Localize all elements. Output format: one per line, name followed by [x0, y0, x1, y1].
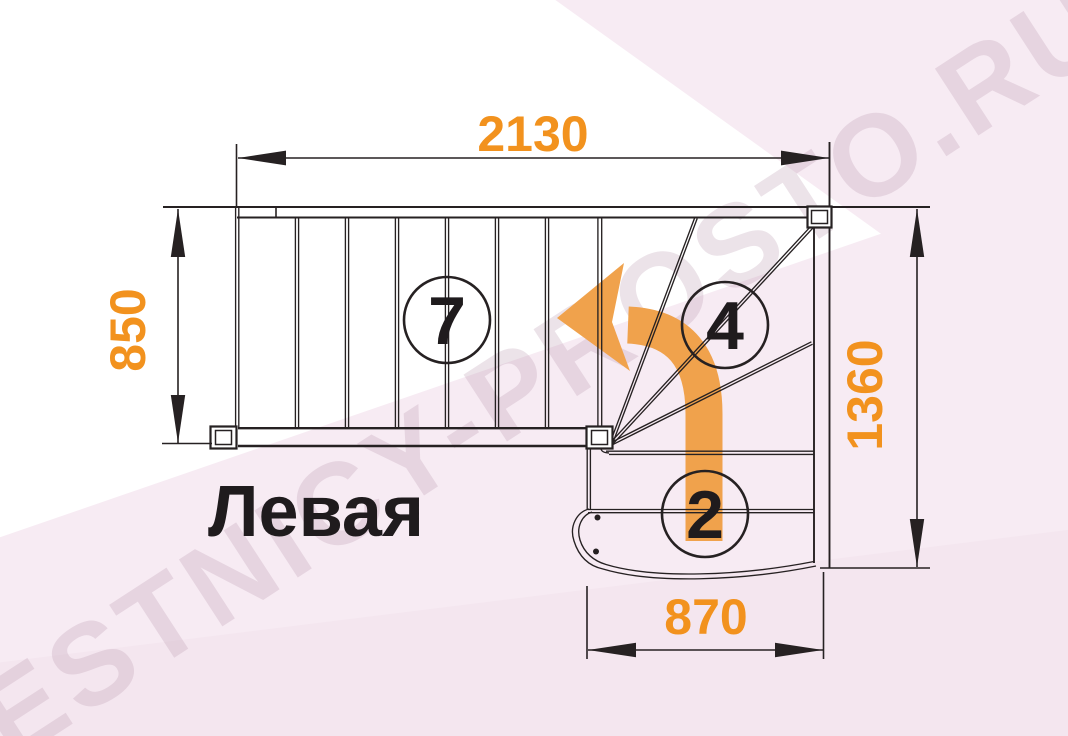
- riser-lines: [295, 219, 548, 428]
- stair-plan-drawing: LESTNICY-PROSTO.RU: [0, 0, 1068, 736]
- dim-arrowhead-left: [588, 643, 636, 657]
- dimension-value-bottom: 870: [664, 589, 747, 645]
- dim-arrowhead-left: [238, 151, 286, 166]
- dim-arrowhead-down: [910, 519, 924, 567]
- dimension-bottom-width: 870: [587, 572, 824, 659]
- stair-plan-svg: 7 4 2 2130 850 1360: [0, 0, 1068, 736]
- dim-arrowhead-up: [171, 209, 185, 257]
- dim-arrowhead-down: [171, 395, 185, 443]
- dimension-top-width: 2130: [237, 106, 830, 206]
- dimension-value-left: 850: [100, 288, 156, 371]
- left-arrow-icon: [557, 263, 630, 371]
- dowel-dot: [593, 549, 599, 555]
- turn-direction-arrow: [557, 263, 704, 541]
- dimension-value-right: 1360: [837, 339, 893, 450]
- dimension-value-top: 2130: [477, 106, 588, 162]
- winder-step-count: 4: [706, 288, 744, 364]
- dimension-left-width: 850: [100, 209, 212, 444]
- orientation-label: Левая: [208, 472, 424, 552]
- dim-arrowhead-right: [775, 643, 823, 657]
- dim-arrowhead-right: [781, 151, 829, 166]
- upper-flight-step-count: 7: [428, 283, 466, 359]
- dim-arrowhead-up: [910, 209, 924, 257]
- lower-flight-step-count: 2: [686, 477, 724, 553]
- dimension-right-height: 1360: [820, 209, 930, 568]
- dowel-dot: [595, 515, 601, 521]
